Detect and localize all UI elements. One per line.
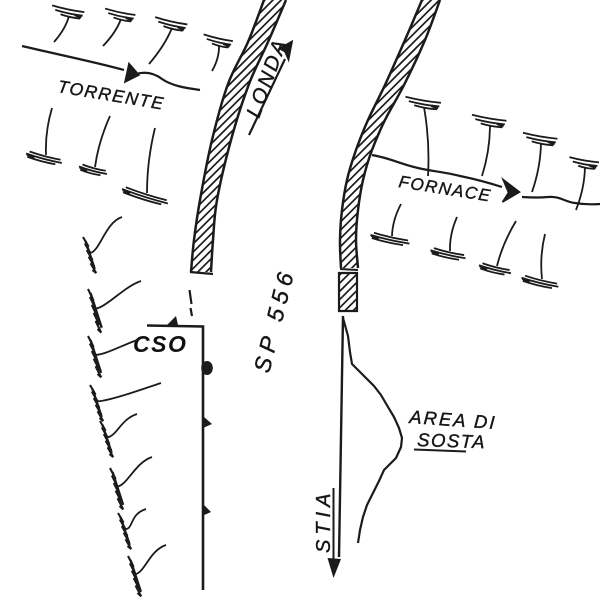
svg-text:STIA: STIA [313,489,335,553]
svg-text:SOSTA: SOSTA [417,429,487,452]
svg-text:CSO: CSO [133,331,187,357]
